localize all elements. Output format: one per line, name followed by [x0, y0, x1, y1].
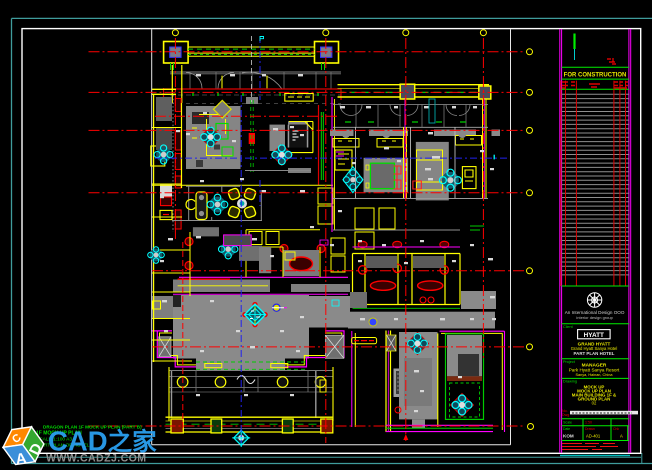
- svg-text:interior design group: interior design group: [576, 315, 613, 320]
- svg-text:KOM: KOM: [563, 434, 574, 439]
- svg-text:HYATT: HYATT: [584, 332, 604, 339]
- svg-text:A: A: [620, 434, 623, 439]
- svg-text:Dwg: Dwg: [562, 413, 569, 417]
- svg-text:PART PLAN HOTEL: PART PLAN HOTEL: [574, 351, 615, 356]
- svg-text:Project: Project: [563, 360, 576, 364]
- svg-text:FOR CONSTRUCTION: FOR CONSTRUCTION: [564, 73, 627, 79]
- svg-text:WWW.CADZJ.COM: WWW.CADZJ.COM: [46, 452, 147, 464]
- svg-text:Date: Date: [563, 427, 570, 431]
- svg-text:Drawing: Drawing: [563, 380, 577, 384]
- svg-text:AD-401: AD-401: [586, 434, 601, 439]
- svg-text:1:50: 1:50: [585, 420, 592, 424]
- svg-text:Drawn: Drawn: [585, 427, 595, 431]
- svg-text:Client: Client: [563, 325, 574, 329]
- svg-text:Chk: Chk: [613, 427, 619, 431]
- svg-text:Sanya, Hainan, China: Sanya, Hainan, China: [576, 373, 614, 377]
- svg-text:Scale: Scale: [563, 420, 572, 424]
- svg-text:02: 02: [592, 400, 597, 405]
